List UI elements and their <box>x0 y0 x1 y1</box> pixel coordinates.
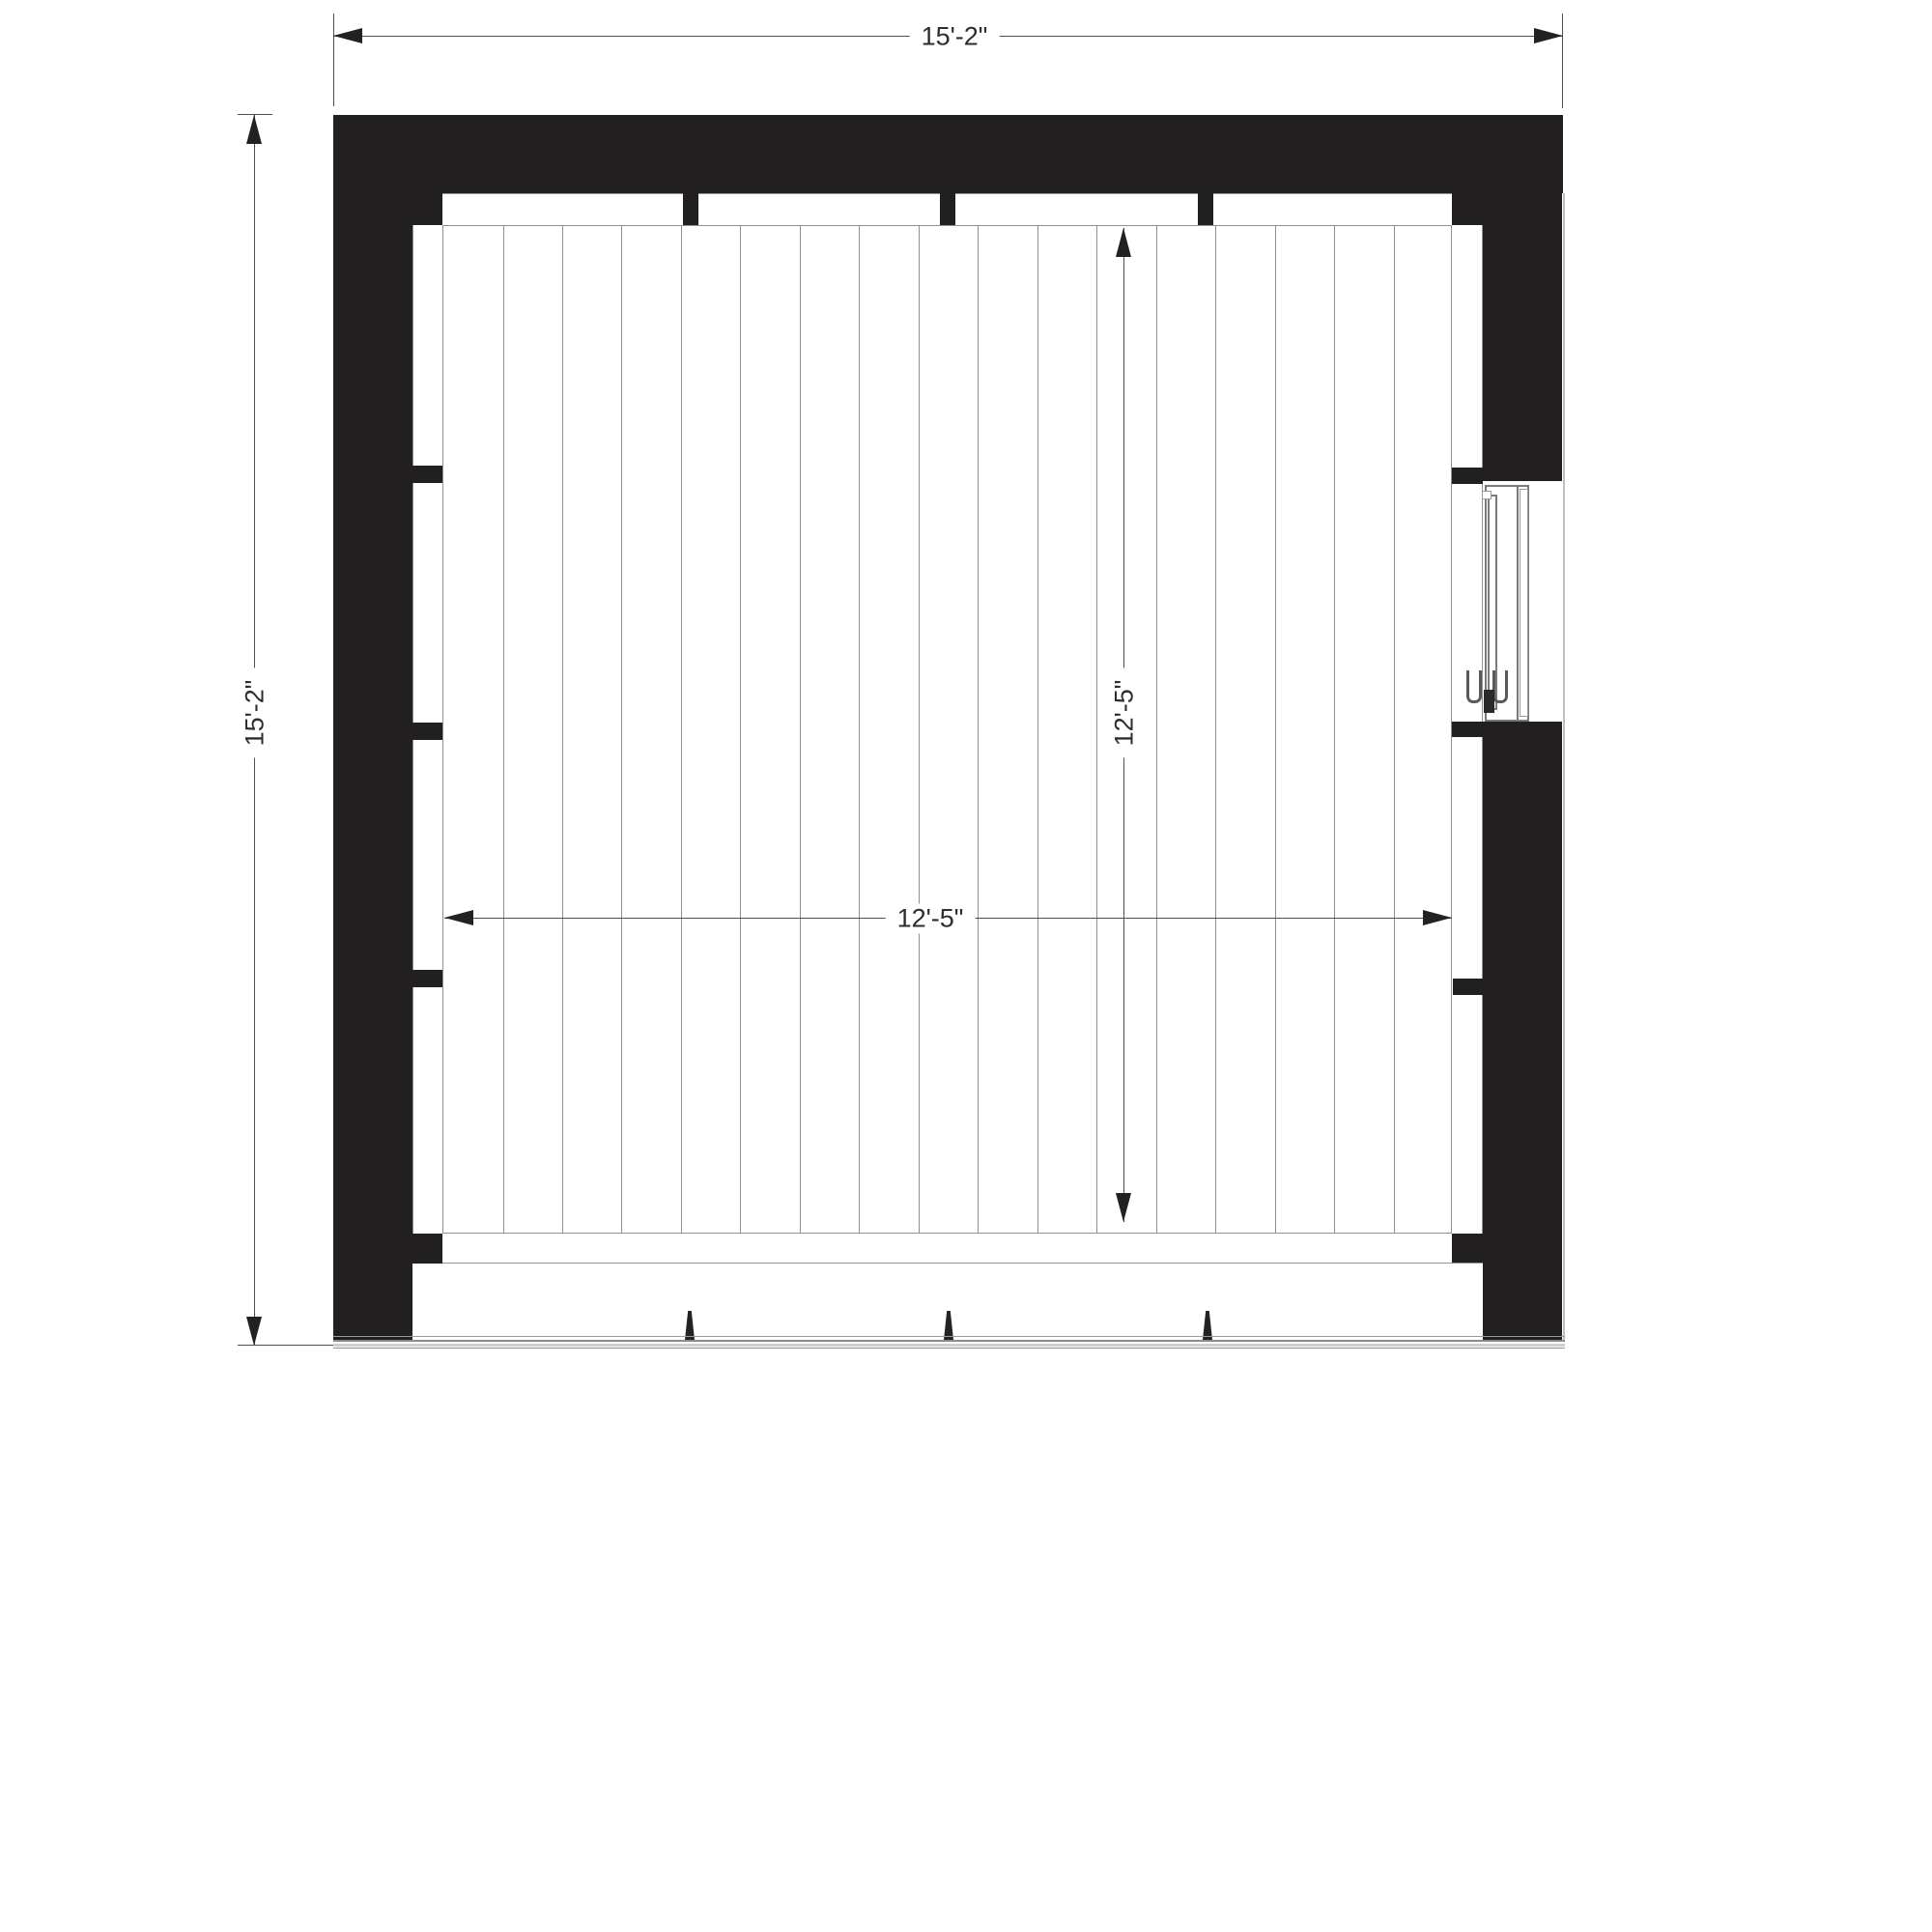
door-handle-left-icon <box>1466 670 1482 703</box>
deck-edge-line-4 <box>333 1348 1565 1349</box>
wall-stud-top <box>683 193 698 225</box>
wall-stud-right <box>1453 979 1483 995</box>
wall-stud-top <box>1198 193 1213 225</box>
deck-edge-line-3 <box>333 1344 1565 1347</box>
door-track-inner <box>1520 489 1528 717</box>
door-panel-notch <box>1482 491 1492 499</box>
arrowhead-up-icon <box>1116 228 1131 257</box>
wall-stud-top <box>940 193 955 225</box>
door-latch-tab <box>1484 690 1494 713</box>
deck-edge-line-1 <box>333 1336 1565 1337</box>
door-frame-divider <box>1517 485 1519 722</box>
wall-stud-left <box>412 466 442 483</box>
arrowhead-down-icon <box>1116 1193 1131 1222</box>
arrowhead-left-icon <box>444 910 473 925</box>
deck-depth-label: 12'-5" <box>1110 668 1140 758</box>
framing-layer <box>0 0 1932 1932</box>
wall-stud-left <box>412 970 442 987</box>
deck-edge-line-2 <box>333 1340 1565 1342</box>
deck-width-label: 12'-5" <box>886 904 976 934</box>
wall-stud-left <box>412 723 442 740</box>
arrowhead-right-icon <box>1423 910 1452 925</box>
floor-plan-canvas: 15'-2" 15'-2" <box>0 0 1932 1932</box>
door-handle-right-icon <box>1492 670 1508 703</box>
door-jamb-block <box>1452 468 1483 484</box>
door-sill-bar <box>1452 722 1562 737</box>
